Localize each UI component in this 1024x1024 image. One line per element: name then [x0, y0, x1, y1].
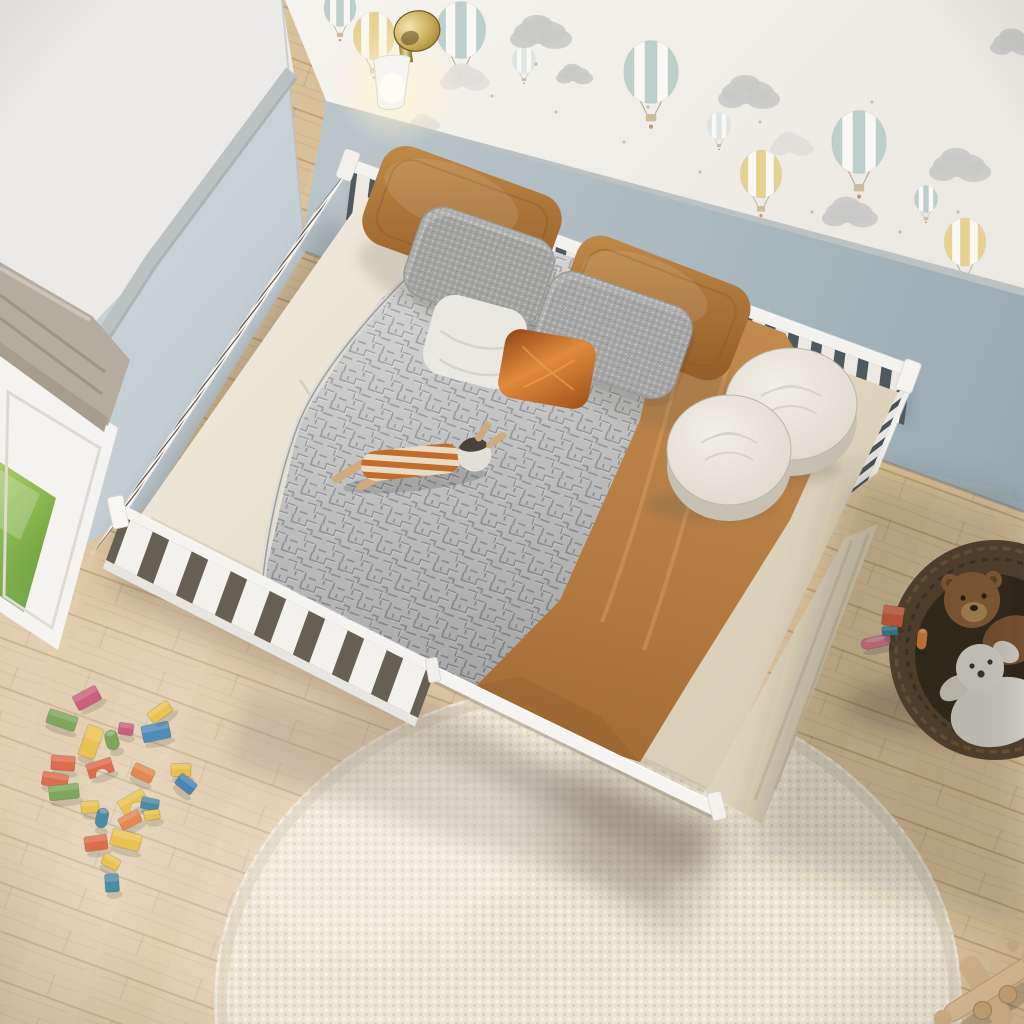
scene-svg: [0, 0, 1024, 1024]
vignette: [0, 0, 1024, 1024]
nursery-room-photo: [0, 0, 1024, 1024]
lighting-overlays: [0, 0, 1024, 1024]
